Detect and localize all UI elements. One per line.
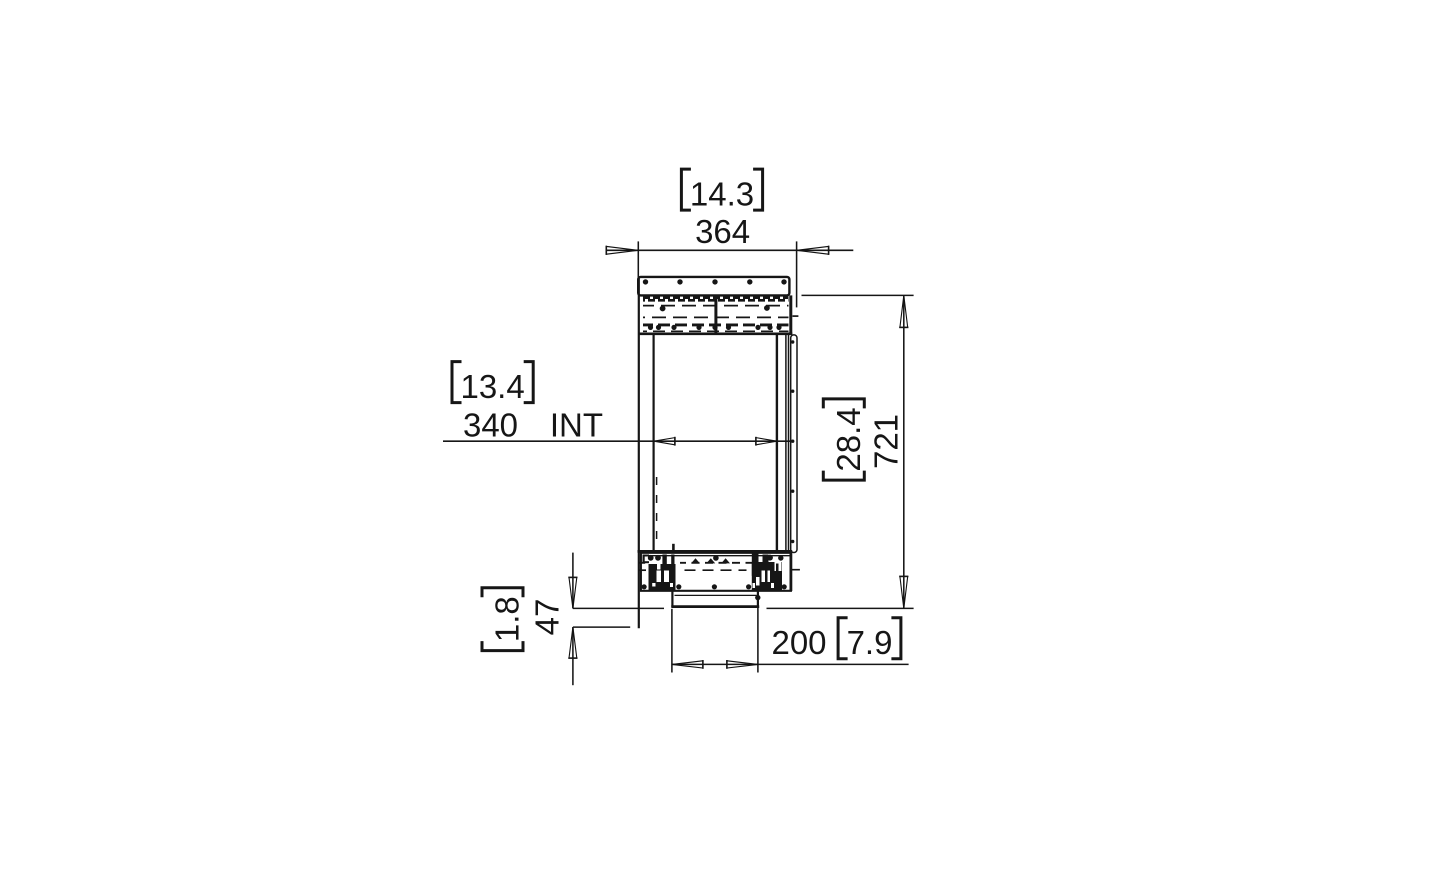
- svg-text:7.9: 7.9: [847, 624, 893, 661]
- svg-text:28.4: 28.4: [830, 407, 867, 471]
- svg-text:721: 721: [868, 414, 905, 469]
- svg-text:13.4: 13.4: [460, 368, 524, 405]
- svg-text:14.3: 14.3: [690, 176, 754, 213]
- svg-text:47: 47: [529, 599, 566, 636]
- svg-text:200: 200: [771, 624, 826, 661]
- svg-text:1.8: 1.8: [489, 596, 526, 642]
- svg-text:364: 364: [695, 213, 750, 250]
- svg-text:INT: INT: [550, 407, 603, 444]
- svg-text:340: 340: [463, 407, 518, 444]
